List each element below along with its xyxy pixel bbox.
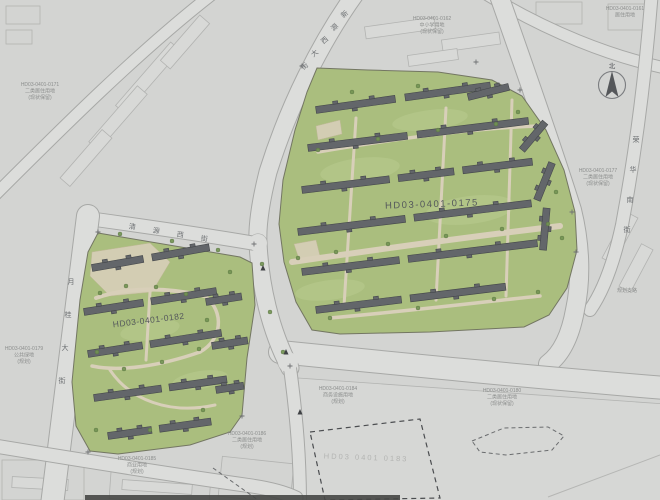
annotation-line: 商业用地	[127, 462, 147, 469]
annotation-line: 中小学用地	[419, 22, 444, 29]
building-wing	[221, 382, 226, 386]
building-wing	[342, 188, 347, 191]
building-wing	[441, 125, 446, 129]
building-wing	[181, 299, 186, 303]
building-wing	[165, 335, 170, 339]
street-name-char: 大	[62, 343, 69, 352]
building-wing	[509, 158, 514, 162]
building-wing	[178, 255, 183, 259]
tree-icon	[170, 239, 174, 243]
building-wing	[375, 133, 380, 137]
annotation-line: (现状保留)	[586, 180, 610, 187]
building-wing	[170, 420, 175, 424]
building-wing	[219, 338, 224, 342]
building-wing	[467, 214, 472, 217]
tree-icon	[516, 110, 520, 114]
building-wing	[164, 248, 169, 252]
building-wing	[334, 301, 339, 305]
building-wing	[435, 167, 440, 171]
tree-icon	[554, 190, 558, 194]
building-wing	[234, 380, 239, 384]
tree-icon	[268, 310, 272, 314]
tree-icon	[560, 236, 564, 240]
building-wing	[165, 292, 170, 296]
tree-icon	[500, 227, 504, 231]
tree-icon	[216, 248, 220, 252]
annotation-line: 公共绿地	[14, 352, 34, 359]
building-wing	[116, 266, 121, 270]
building-wing	[495, 241, 500, 245]
annotation-line: 商务设施用地	[323, 392, 353, 399]
building-wing	[444, 95, 449, 98]
building-wing	[548, 226, 551, 231]
building-wing	[467, 255, 472, 258]
building-wing	[123, 299, 128, 303]
building-wing	[128, 436, 133, 439]
building-wing	[538, 235, 541, 240]
building-wing	[190, 244, 195, 248]
building-wing	[99, 345, 104, 349]
building-wing	[347, 229, 352, 232]
building-wing	[369, 96, 374, 100]
building-wing	[346, 269, 351, 272]
building-wing	[410, 170, 415, 174]
building-wing	[139, 385, 144, 389]
building-wing	[468, 131, 473, 134]
street-name-char: 月	[68, 278, 75, 286]
building-wing	[329, 139, 334, 143]
street-name-char: 西	[176, 231, 184, 240]
building-wing	[454, 296, 459, 299]
building-wing	[229, 346, 234, 350]
tree-icon	[124, 284, 128, 288]
building-wing	[183, 342, 188, 346]
building-wing	[436, 249, 441, 253]
annotation-line: (现状保留)	[420, 28, 444, 35]
tree-icon	[94, 428, 98, 432]
building-wing	[430, 289, 435, 293]
annotation-line: HD03-0401-0177	[579, 168, 618, 174]
tree-icon	[148, 428, 152, 432]
building-wing	[321, 222, 326, 226]
building-wing	[125, 396, 130, 399]
building-wing	[198, 330, 203, 334]
tree-icon	[228, 270, 232, 274]
annotation-line: 居住用地	[615, 12, 635, 19]
annotation-line: (规划)	[240, 443, 254, 450]
building-wing	[462, 83, 467, 87]
tree-icon	[95, 350, 99, 354]
building-wing	[320, 181, 325, 185]
building-wing	[124, 341, 129, 345]
tree-icon	[316, 148, 320, 152]
building-wing	[207, 375, 212, 379]
annotation-line: (现状保留)	[490, 400, 514, 407]
tree-icon	[444, 234, 448, 238]
building-wing	[213, 294, 218, 298]
tree-icon	[546, 222, 550, 226]
tree-icon	[260, 262, 264, 266]
annotation-line: (规划)	[331, 398, 345, 405]
building-wing	[539, 216, 542, 221]
tree-icon	[334, 250, 338, 254]
annotation-line: 二类居住用地	[232, 437, 262, 444]
scan-shadow	[85, 495, 400, 500]
building-wing	[474, 284, 479, 288]
building-wing	[361, 176, 366, 180]
building-wing	[113, 353, 118, 357]
building-wing	[355, 308, 360, 311]
building-wing	[96, 303, 101, 307]
tree-icon	[436, 128, 440, 132]
building-wing	[196, 386, 201, 389]
building-wing	[108, 389, 113, 393]
annotation-line: HD03-0401-0180	[483, 388, 522, 394]
building-wing	[423, 88, 428, 92]
annotation-line: 二类居住用地	[25, 88, 55, 95]
building-wing	[494, 169, 499, 172]
annotation-line: 规划支路	[617, 287, 637, 294]
annotation-line: 二类居住用地	[487, 394, 517, 401]
annotation-line: HD03-0401-0161	[606, 6, 645, 12]
annotation-line: HD03-0401-0184	[319, 386, 358, 392]
building-wing	[111, 310, 116, 314]
building-wing	[424, 178, 429, 181]
building-wing	[373, 296, 378, 300]
building-wing	[229, 291, 234, 295]
building-wing	[137, 425, 142, 429]
street-name-char: 南	[627, 195, 634, 204]
annotation-line: 二类居住用地	[583, 174, 613, 181]
annotation-line: HD03-0401-0179	[5, 346, 44, 352]
building-wing	[333, 101, 338, 105]
tree-icon	[536, 290, 540, 294]
tree-icon	[197, 347, 201, 351]
tree-icon	[328, 316, 332, 320]
tree-icon	[118, 232, 122, 236]
compass-north-label: 北	[609, 62, 616, 70]
street-name-char: 华	[630, 165, 637, 174]
annotation-line: (现状保留)	[28, 94, 52, 101]
street-name-char: 街	[624, 225, 631, 234]
building-wing	[352, 108, 357, 111]
building-wing	[235, 335, 240, 339]
building-wing	[370, 216, 375, 220]
building-wing	[117, 428, 122, 432]
building-wing	[367, 257, 372, 261]
street-name-char: 街	[59, 376, 66, 385]
building-wing	[126, 255, 131, 259]
tree-icon	[201, 408, 205, 412]
annotation-line: HD03-0401-0186	[228, 431, 267, 437]
annotation-line: (规划)	[130, 468, 144, 475]
tree-icon	[296, 256, 300, 260]
site-plan-screenshot: 北 HD03-0401-0175HD03-0401-0182HD03 0401 …	[0, 0, 660, 500]
building-wing	[492, 119, 497, 123]
annotation-line: HD03-0401-0162	[413, 16, 452, 22]
tree-icon	[416, 306, 420, 310]
tree-icon	[184, 292, 188, 296]
tree-icon	[376, 137, 380, 141]
building-wing	[323, 263, 328, 267]
building-wing	[229, 391, 234, 395]
building-wing	[181, 379, 186, 383]
building-wing	[223, 302, 228, 306]
annotation-line: HD03-0401-0171	[21, 82, 60, 88]
tree-icon	[154, 285, 158, 289]
tree-icon	[494, 122, 498, 126]
tree-icon	[492, 297, 496, 301]
tree-icon	[386, 242, 390, 246]
building-wing	[477, 162, 482, 166]
street-name-char: 桂	[65, 310, 72, 319]
building-wing	[102, 259, 107, 263]
building-wing	[493, 201, 498, 205]
tree-icon	[350, 90, 354, 94]
building-wing	[195, 287, 200, 291]
annotation-line: (规划)	[17, 358, 31, 365]
building-wing	[194, 417, 199, 421]
street-name-char: 荣	[633, 135, 640, 144]
tree-icon	[205, 318, 209, 322]
annotation-line: HD03-0401-0185	[118, 456, 157, 462]
tree-icon	[98, 291, 102, 295]
building-wing	[183, 428, 188, 431]
building-wing	[353, 145, 358, 148]
site-plan-map: 北 HD03-0401-0175HD03-0401-0182HD03 0401 …	[0, 0, 660, 500]
tree-icon	[416, 84, 420, 88]
tree-icon	[122, 367, 126, 371]
tree-icon	[160, 360, 164, 364]
